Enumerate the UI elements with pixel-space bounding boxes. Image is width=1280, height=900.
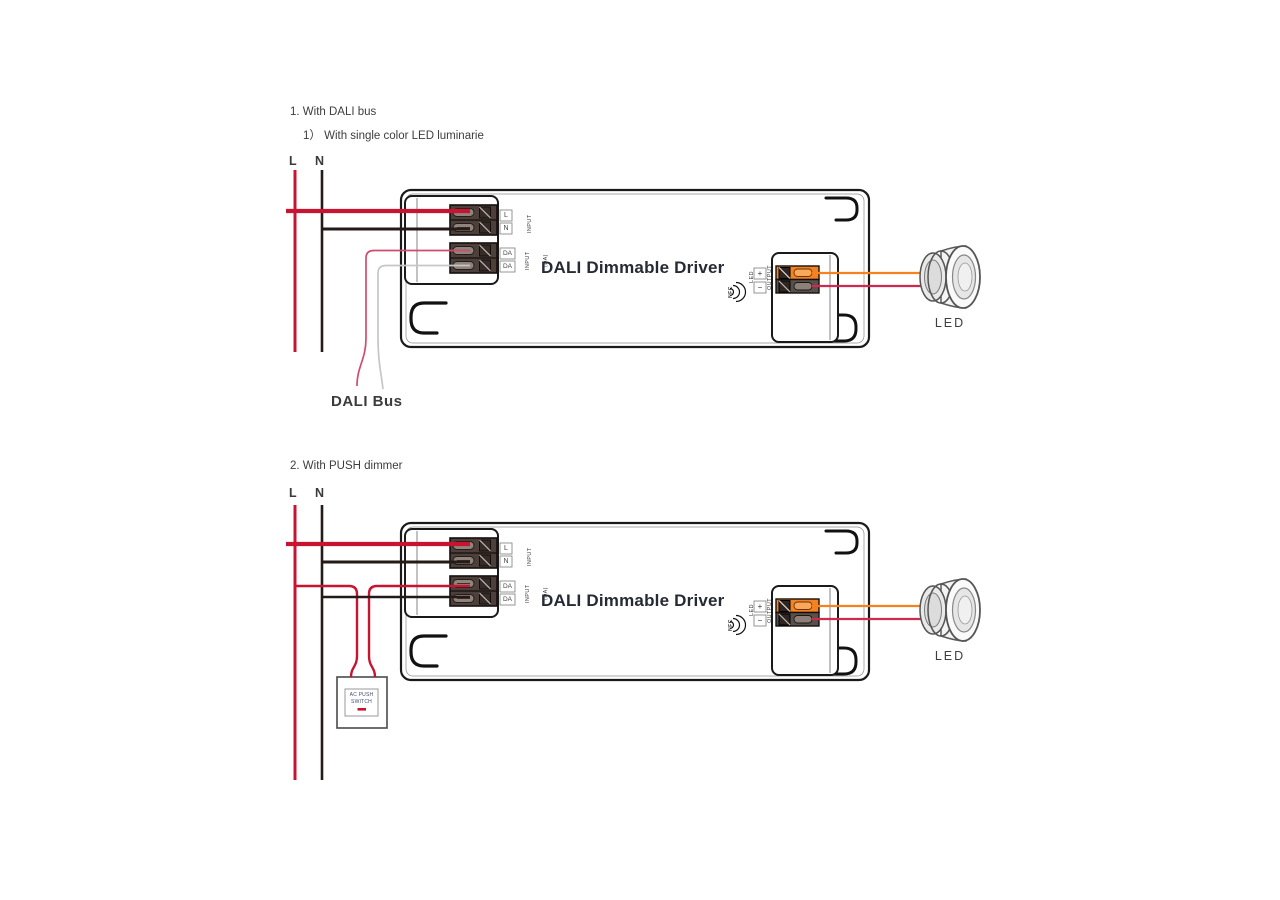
nfc-text-2: NFC bbox=[728, 619, 734, 632]
diagram2-art bbox=[286, 505, 980, 780]
input-label-text-1: INPUT bbox=[527, 209, 533, 239]
led-output-line2-2: OUTPUT bbox=[767, 594, 773, 627]
input-label-text-2: INPUT bbox=[527, 542, 533, 572]
terminal-l-label-2: L bbox=[500, 543, 512, 554]
led-label-1: LED bbox=[928, 316, 972, 330]
live-wire-label-1: L bbox=[289, 155, 297, 168]
dali-input-label-1: INPUT (DA) bbox=[513, 247, 526, 275]
push-switch-label-line2: SWITCH bbox=[344, 699, 379, 706]
led-output-line1-1: LED bbox=[749, 261, 755, 294]
dali-input-line1-1: INPUT bbox=[525, 247, 531, 275]
led-output-line2-1: OUTPUT bbox=[767, 261, 773, 294]
neutral-wire-label-1: N bbox=[315, 155, 324, 168]
led-label-2: LED bbox=[928, 649, 972, 663]
led-output-line1-2: LED bbox=[749, 594, 755, 627]
section2-heading: 2. With PUSH dimmer bbox=[290, 459, 402, 473]
wiring-diagram-page: 1. With DALI bus 1） With single color LE… bbox=[0, 0, 1280, 900]
nfc-icon-label-2: NFC bbox=[716, 619, 723, 632]
driver-title-2: DALI Dimmable Driver bbox=[541, 592, 723, 610]
terminal-n-label-2: N bbox=[500, 556, 512, 567]
terminal-l-label-1: L bbox=[500, 210, 512, 221]
driver-title-1: DALI Dimmable Driver bbox=[541, 259, 723, 277]
dali-input-line2-2: (DA) bbox=[543, 580, 549, 608]
diagram1-art bbox=[286, 170, 980, 389]
section1-subheading: 1） With single color LED luminarie bbox=[303, 129, 484, 143]
push-switch-label-line1: AC PUSH bbox=[344, 692, 379, 699]
live-wire-label-2: L bbox=[289, 487, 297, 500]
dali-bus-label: DALI Bus bbox=[331, 393, 403, 410]
neutral-wire-label-2: N bbox=[315, 487, 324, 500]
wiring-diagram-canvas bbox=[0, 0, 1280, 900]
section1-heading: 1. With DALI bus bbox=[290, 105, 376, 119]
dali-input-line2-1: (DA) bbox=[543, 247, 549, 275]
nfc-text-1: NFC bbox=[728, 286, 734, 299]
nfc-icon-label-1: NFC bbox=[716, 286, 723, 299]
terminal-n-label-1: N bbox=[500, 223, 512, 234]
dali-input-line1-2: INPUT bbox=[525, 580, 531, 608]
input-label-1: INPUT bbox=[515, 209, 522, 239]
input-label-2: INPUT bbox=[515, 542, 522, 572]
dali-input-label-2: INPUT (DA) bbox=[513, 580, 526, 608]
